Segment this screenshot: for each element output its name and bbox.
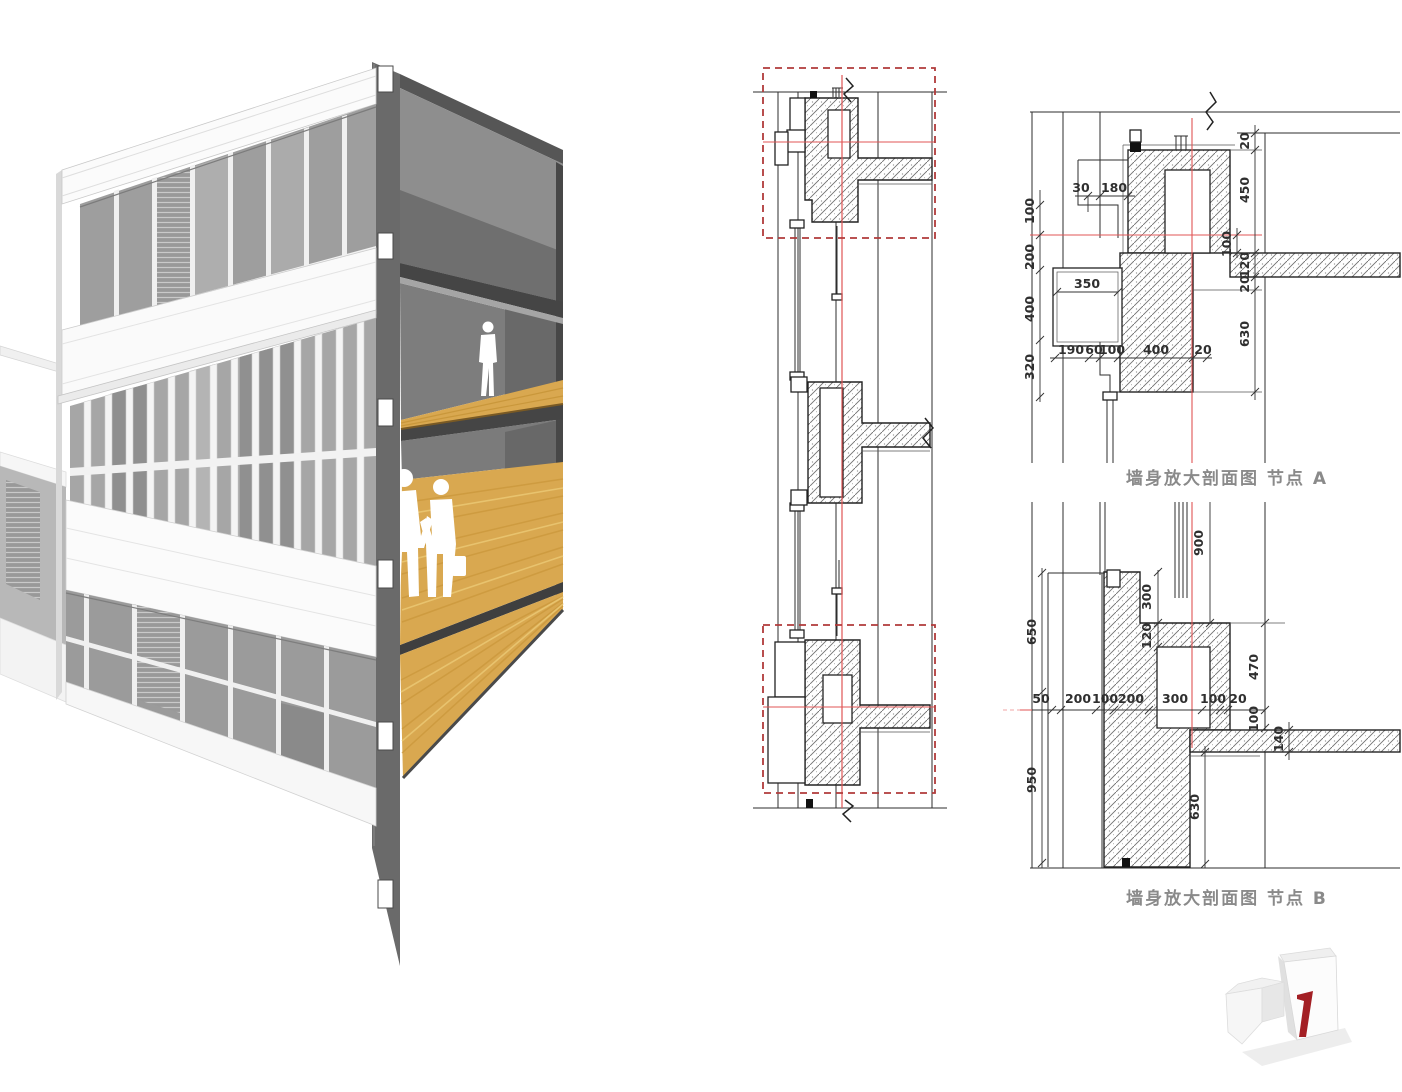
facade-element bbox=[273, 346, 280, 548]
facade-element bbox=[304, 127, 309, 272]
facade-element bbox=[126, 388, 133, 516]
sheet-canvas: 100 200 400 320 30 180 350 190 60 100 40… bbox=[0, 0, 1402, 1092]
facade-element bbox=[357, 321, 364, 565]
building-facade bbox=[56, 68, 376, 826]
dim-b-row-2: 100 bbox=[1092, 691, 1118, 706]
dim-a-right-3: 20 bbox=[1237, 275, 1252, 293]
dim-a-top-1: 180 bbox=[1101, 180, 1127, 195]
dim-b-row-1: 200 bbox=[1065, 691, 1091, 706]
detail-a-drawing: 100 200 400 320 30 180 350 190 60 100 40… bbox=[1022, 92, 1400, 489]
building-cutaway-rendering bbox=[0, 62, 563, 966]
dim-b-right-1: 100 bbox=[1246, 706, 1261, 732]
dim-b-right-3: 630 bbox=[1187, 794, 1202, 820]
dim-a-350: 350 bbox=[1074, 276, 1100, 291]
dim-a-bottom-4: 20 bbox=[1194, 342, 1212, 357]
dim-a-bottom-2: 100 bbox=[1099, 342, 1125, 357]
dim-a-left-1: 200 bbox=[1022, 244, 1037, 270]
facade-element bbox=[147, 382, 154, 520]
facade-element bbox=[189, 370, 196, 529]
dim-a-top-0: 30 bbox=[1072, 180, 1090, 195]
dim-b-right-2: 140 bbox=[1271, 726, 1286, 752]
dim-a-bottom-3: 400 bbox=[1143, 342, 1169, 357]
dim-b-row-3: 200 bbox=[1118, 691, 1144, 706]
dim-b-right-0: 470 bbox=[1246, 654, 1261, 680]
detail-a-title: 墙身放大剖面图 节点 A bbox=[1126, 468, 1328, 489]
louver-panel-top bbox=[152, 168, 190, 308]
architectural-sheet: 100 200 400 320 30 180 350 190 60 100 40… bbox=[0, 0, 1402, 1092]
facade-element bbox=[84, 400, 91, 507]
facade-element bbox=[252, 352, 259, 543]
dim-b-row-5: 100 bbox=[1200, 691, 1226, 706]
facade-element bbox=[190, 164, 195, 302]
facade-element bbox=[168, 376, 175, 525]
dim-a-right-2: 120 bbox=[1237, 252, 1252, 278]
wall-section-drawing bbox=[753, 68, 947, 822]
facade-element bbox=[342, 115, 347, 262]
section-cut-strip bbox=[372, 62, 400, 966]
dim-a-left-2: 400 bbox=[1022, 296, 1037, 322]
facade-element bbox=[266, 140, 271, 283]
dim-a-right-inner: 100 bbox=[1219, 231, 1234, 257]
dim-a-left-3: 320 bbox=[1022, 354, 1037, 380]
section-mid-assembly bbox=[791, 377, 933, 505]
facade-element bbox=[336, 327, 343, 560]
dim-b-left-1: 950 bbox=[1024, 767, 1039, 793]
briefcase bbox=[452, 556, 466, 576]
section-node-a bbox=[775, 78, 932, 222]
detail-b-drawing: 50 200 100 200 300 100 20 650 950 900 30… bbox=[1003, 502, 1400, 909]
dim-b-row-6: 20 bbox=[1229, 691, 1247, 706]
dim-a-left-0: 100 bbox=[1022, 198, 1037, 224]
facade-element bbox=[105, 394, 112, 511]
dim-a-right-0: 20 bbox=[1237, 132, 1252, 150]
dim-a-right-1: 450 bbox=[1237, 177, 1252, 203]
facade-element bbox=[114, 189, 119, 323]
dim-a-right-4: 630 bbox=[1237, 321, 1252, 347]
dim-b-120: 120 bbox=[1139, 623, 1154, 649]
dim-b-300: 300 bbox=[1139, 584, 1154, 610]
facade-element bbox=[210, 364, 217, 534]
facade-element bbox=[152, 177, 157, 313]
section-interior bbox=[391, 74, 563, 778]
detail-b-title: 墙身放大剖面图 节点 B bbox=[1126, 888, 1328, 909]
dim-b-900: 900 bbox=[1191, 530, 1206, 556]
dim-b-row-4: 300 bbox=[1162, 691, 1188, 706]
section-node-b bbox=[768, 640, 930, 822]
facade-element bbox=[315, 334, 322, 557]
logo-3d bbox=[1226, 948, 1352, 1066]
facade-element bbox=[228, 152, 233, 292]
facade-element bbox=[231, 358, 238, 539]
dim-b-left-0: 650 bbox=[1024, 619, 1039, 645]
facade-element bbox=[294, 340, 301, 552]
dim-a-bottom-0: 190 bbox=[1058, 342, 1084, 357]
dim-b-row-0: 50 bbox=[1032, 691, 1050, 706]
